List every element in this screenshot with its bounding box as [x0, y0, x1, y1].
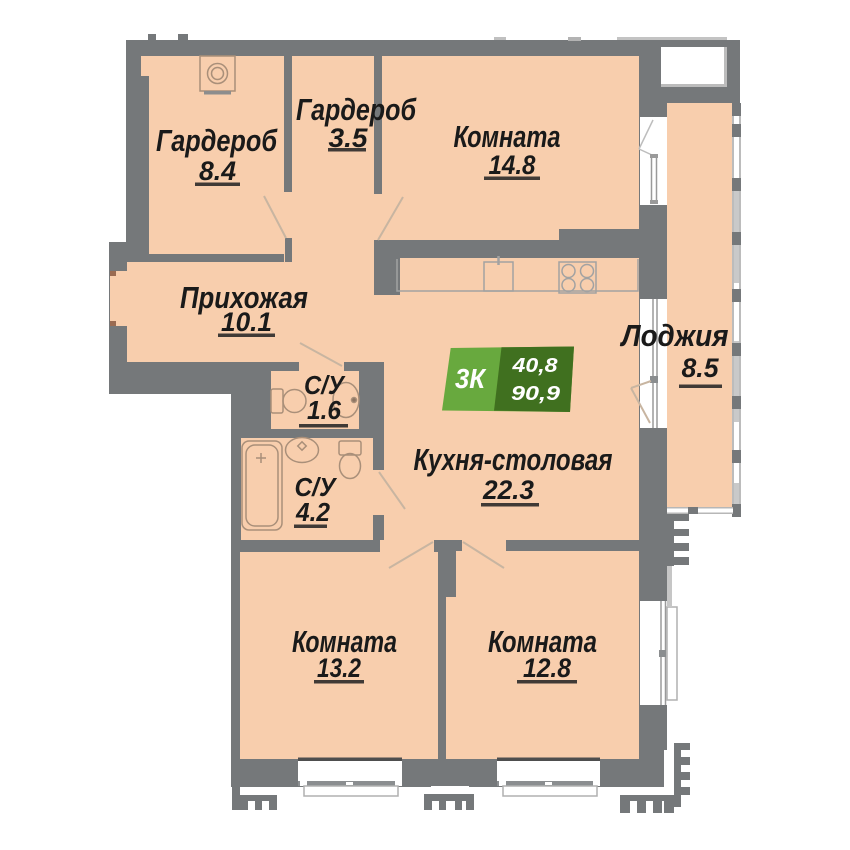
svg-text:1.6: 1.6 [307, 395, 341, 425]
svg-text:8.5: 8.5 [682, 353, 720, 383]
svg-text:90,9: 90,9 [511, 382, 561, 405]
svg-text:14.8: 14.8 [489, 150, 536, 180]
svg-text:Гардероб: Гардероб [296, 92, 417, 127]
svg-text:Лоджия: Лоджия [620, 318, 729, 353]
svg-text:Комната: Комната [454, 119, 561, 154]
svg-text:13.2: 13.2 [317, 653, 361, 683]
svg-text:10.1: 10.1 [221, 307, 272, 337]
svg-text:4.2: 4.2 [295, 497, 330, 527]
svg-text:40,8: 40,8 [511, 354, 558, 377]
svg-text:Кухня-столовая: Кухня-столовая [414, 442, 613, 477]
svg-text:Гардероб: Гардероб [156, 123, 278, 158]
svg-text:22.3: 22.3 [482, 475, 534, 505]
svg-text:8.4: 8.4 [199, 156, 236, 186]
svg-text:3К: 3К [455, 363, 487, 394]
svg-text:12.8: 12.8 [523, 653, 571, 683]
